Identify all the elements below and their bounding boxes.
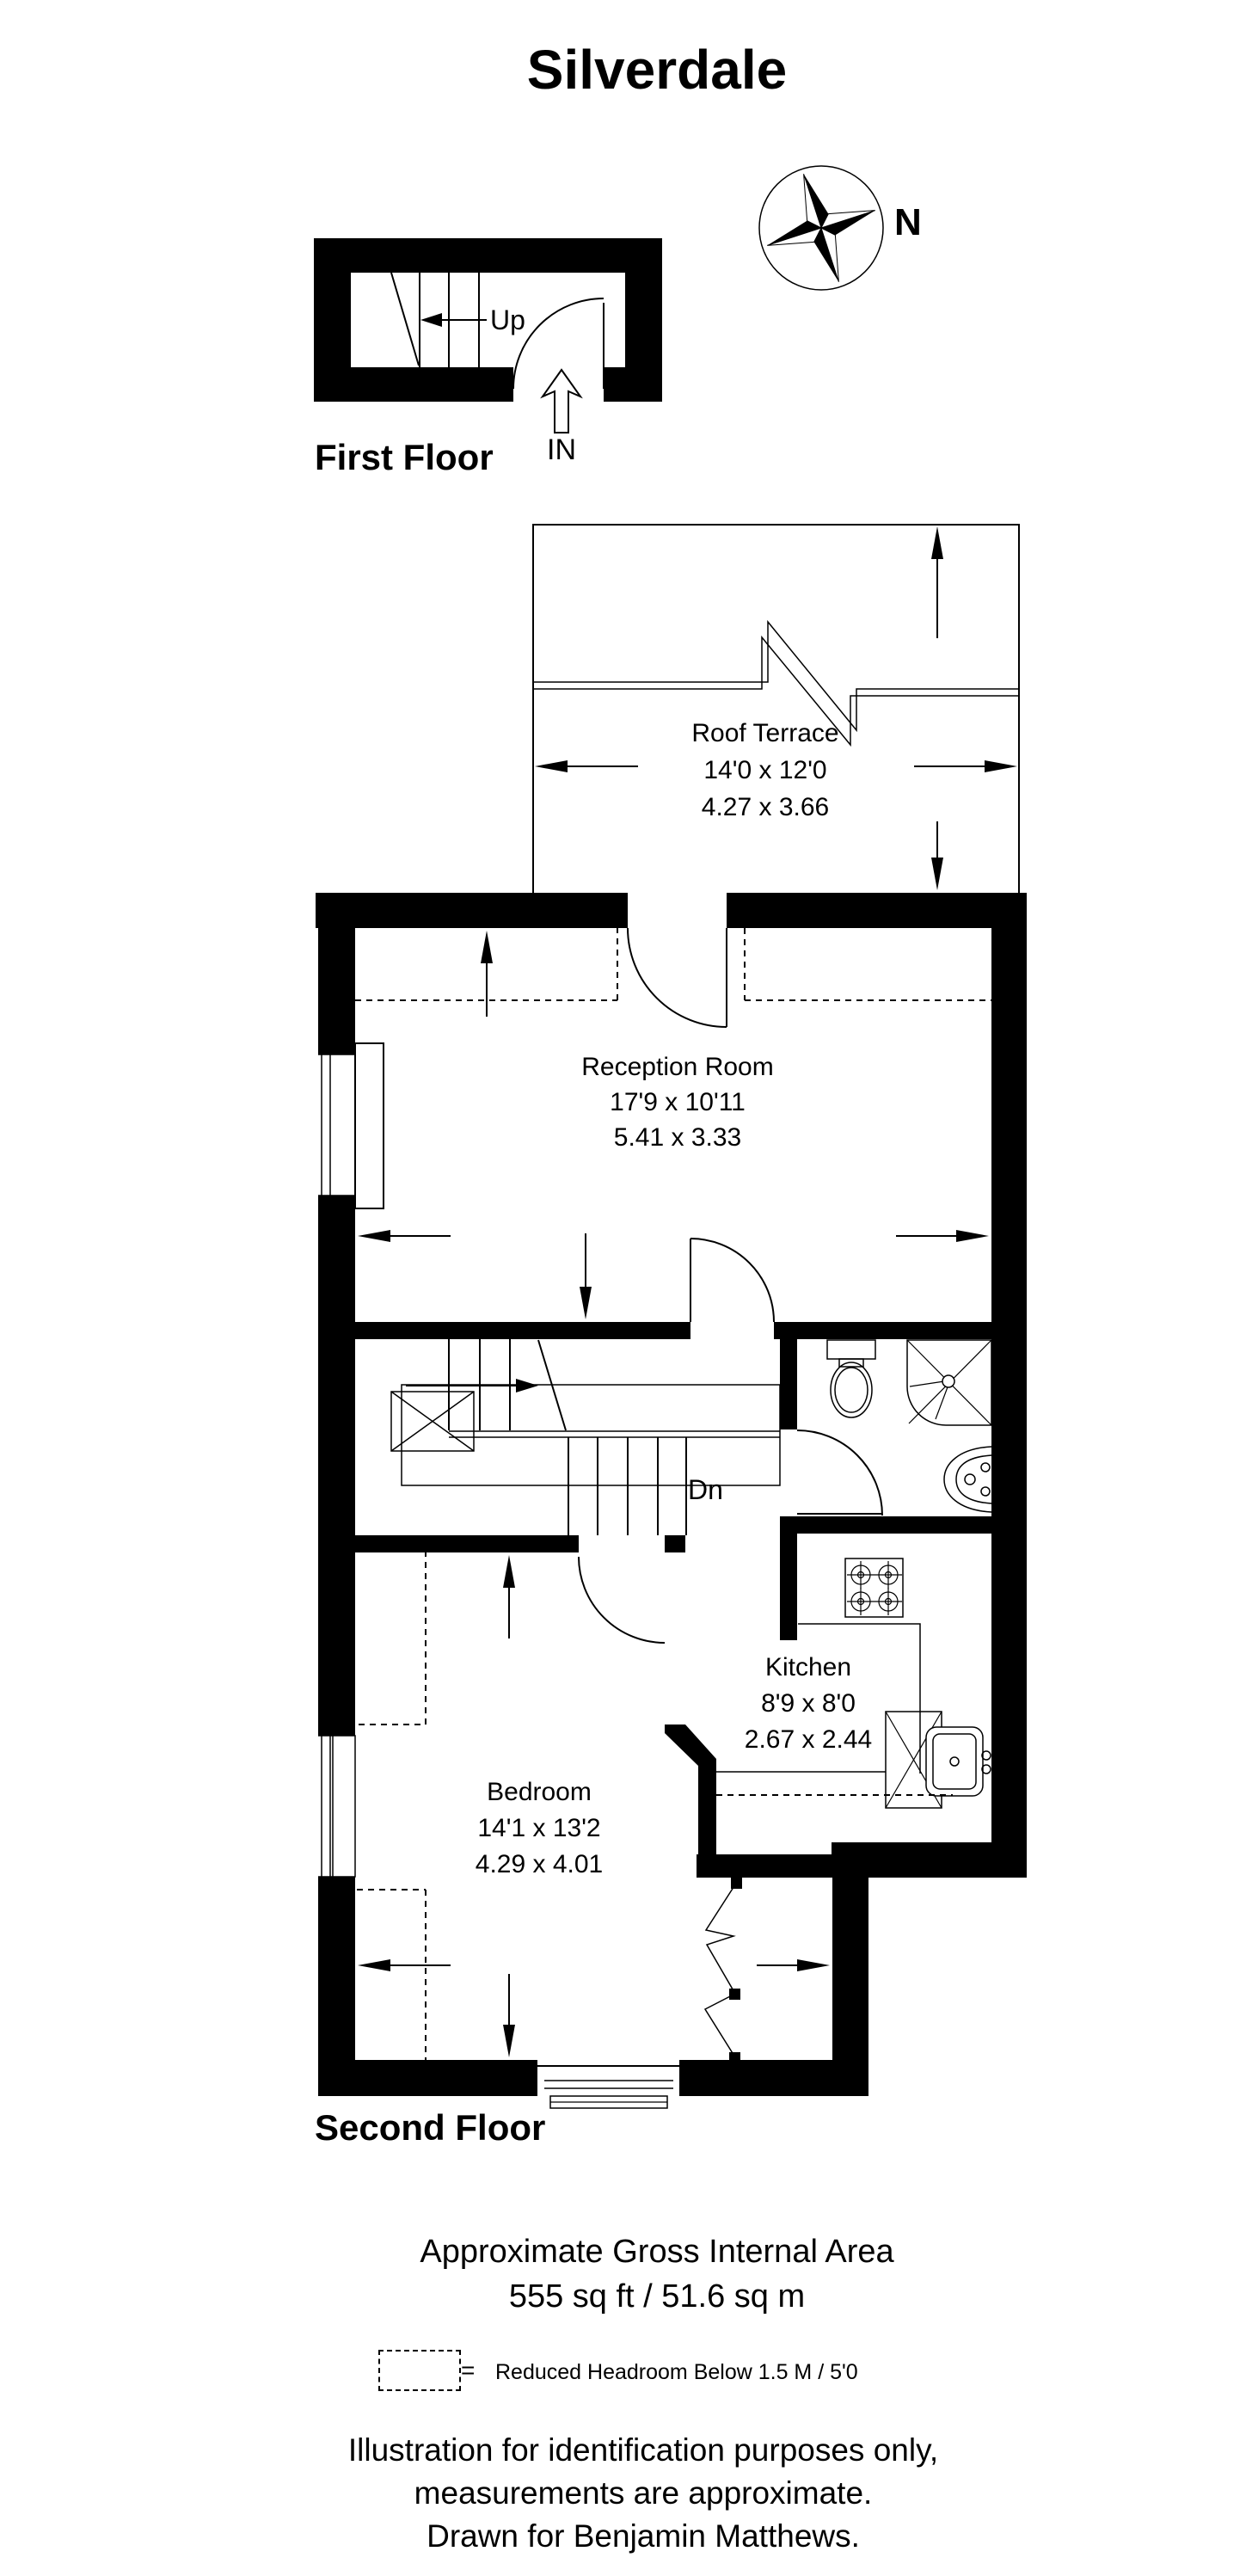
page-title: Silverdale [227,38,1087,101]
room-size-metric: 4.27 x 3.66 [636,789,894,826]
room-name: Roof Terrace [636,715,894,752]
first-floor-label: First Floor [315,437,494,478]
disclaimer-line: Illustration for identification purposes… [196,2429,1090,2472]
folding-door [705,1878,742,2063]
area-value: 555 sq ft / 51.6 sq m [313,2274,1001,2319]
room-size-metric: 5.41 x 3.33 [549,1120,807,1155]
disclaimer-line: Drawn for Benjamin Matthews. [196,2515,1090,2558]
room-size-imperial: 14'0 x 12'0 [636,752,894,789]
reception-hall-door [690,1239,774,1322]
compass-north-label: N [894,201,922,244]
second-floor-label: Second Floor [315,2107,545,2149]
room-name: Kitchen [679,1650,937,1686]
compass-rose-icon [750,157,893,299]
up-direction-arrow [420,313,487,327]
area-title: Approximate Gross Internal Area [313,2229,1001,2274]
room-label-reception: Reception Room 17'9 x 10'11 5.41 x 3.33 [549,1049,807,1155]
room-size-imperial: 17'9 x 10'11 [549,1085,807,1120]
room-size-metric: 4.29 x 4.01 [410,1847,668,1883]
bay-window [537,2060,679,2108]
room-name: Reception Room [549,1049,807,1085]
entrance-in-label: IN [527,433,596,467]
bedroom-door [579,1557,665,1643]
reception-window [316,1043,384,1208]
entrance-in-arrow-icon [543,370,580,433]
stairs-up-label: Up [490,304,525,336]
first-floor-walls [314,238,662,402]
gross-internal-area: Approximate Gross Internal Area 555 sq f… [313,2229,1001,2319]
toilet-icon [827,1340,875,1417]
reduced-headroom-swatch [378,2350,461,2391]
room-size-imperial: 14'1 x 13'2 [410,1811,668,1847]
legend-text: Reduced Headroom Below 1.5 M / 5'0 [495,2360,858,2385]
room-size-imperial: 8'9 x 8'0 [679,1686,937,1722]
floorplan-drawing [0,0,1252,2576]
roof-terrace-dimension-arrows [535,526,1017,890]
roof-terrace-outline [533,525,1019,893]
stairs-down-label: Dn [688,1474,723,1506]
room-label-kitchen: Kitchen 8'9 x 8'0 2.67 x 2.44 [679,1650,937,1758]
first-floor-plan [314,238,662,433]
room-label-roof-terrace: Roof Terrace 14'0 x 12'0 4.27 x 3.66 [636,715,894,826]
room-size-metric: 2.67 x 2.44 [679,1722,937,1758]
bathroom-door [797,1430,882,1515]
shower-icon [907,1340,991,1425]
disclaimer-line: measurements are approximate. [196,2472,1090,2515]
legend-equals: = [461,2357,475,2384]
disclaimer: Illustration for identification purposes… [196,2429,1090,2558]
basin-icon [944,1447,991,1512]
floorplan-page: Silverdale N Up IN First Floor Roof Terr… [0,0,1252,2576]
room-name: Bedroom [410,1774,668,1811]
bedroom-window [316,1736,357,1877]
terrace-door [628,928,727,1027]
room-label-bedroom: Bedroom 14'1 x 13'2 4.29 x 4.01 [410,1774,668,1883]
hob-icon [845,1559,903,1617]
